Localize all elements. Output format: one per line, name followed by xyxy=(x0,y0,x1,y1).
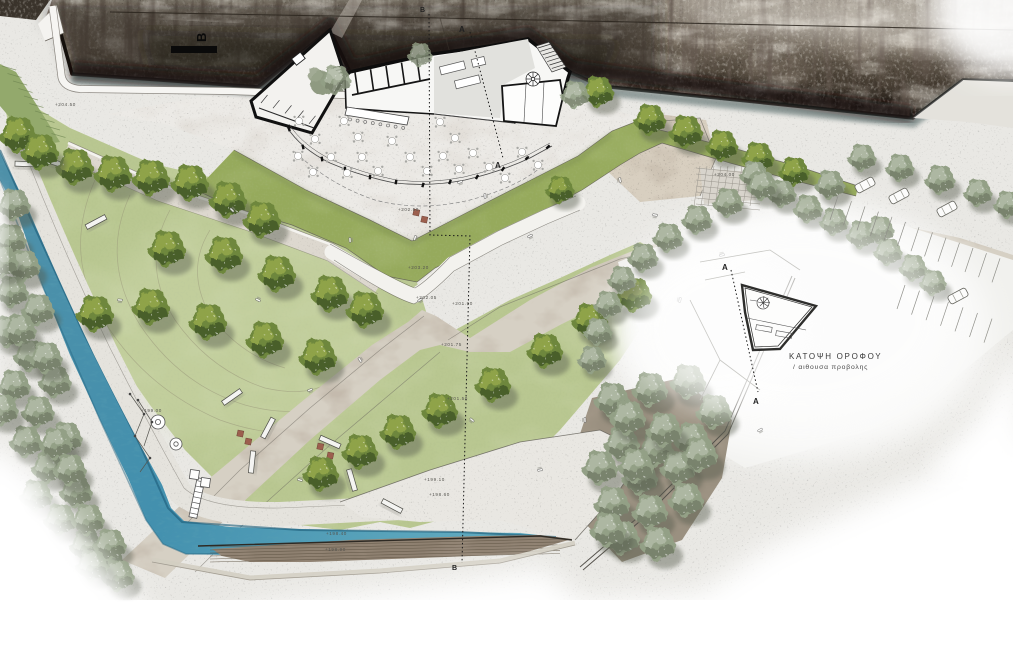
svg-text:B: B xyxy=(420,7,425,14)
svg-text:+202.05: +202.05 xyxy=(416,295,437,300)
svg-text:+201.90: +201.90 xyxy=(452,301,473,306)
svg-text:+198.40: +198.40 xyxy=(326,531,347,536)
svg-text:+203.20: +203.20 xyxy=(408,265,429,270)
svg-text:A: A xyxy=(753,397,759,406)
svg-text:B: B xyxy=(194,33,209,42)
svg-text:ΚΑΤΟΨΗ ΟΡΟΦΟΥ: ΚΑΤΟΨΗ ΟΡΟΦΟΥ xyxy=(789,352,882,361)
svg-text:+202.50: +202.50 xyxy=(398,207,419,212)
svg-text:+199.10: +199.10 xyxy=(424,477,445,482)
svg-text:+199.00: +199.00 xyxy=(141,408,162,413)
svg-text:B: B xyxy=(452,565,457,572)
svg-text:+198.60: +198.60 xyxy=(429,492,450,497)
svg-text:+201.75: +201.75 xyxy=(441,342,462,347)
svg-text:/ αιθουσα προβολης: / αιθουσα προβολης xyxy=(793,364,868,371)
svg-text:+204.00: +204.00 xyxy=(714,172,735,177)
svg-text:+201.50: +201.50 xyxy=(447,396,468,401)
svg-text:A: A xyxy=(459,25,465,34)
svg-text:+198.90: +198.90 xyxy=(325,547,346,552)
svg-text:+204.50: +204.50 xyxy=(55,102,76,107)
svg-text:A: A xyxy=(722,263,728,272)
svg-text:A: A xyxy=(495,161,501,170)
